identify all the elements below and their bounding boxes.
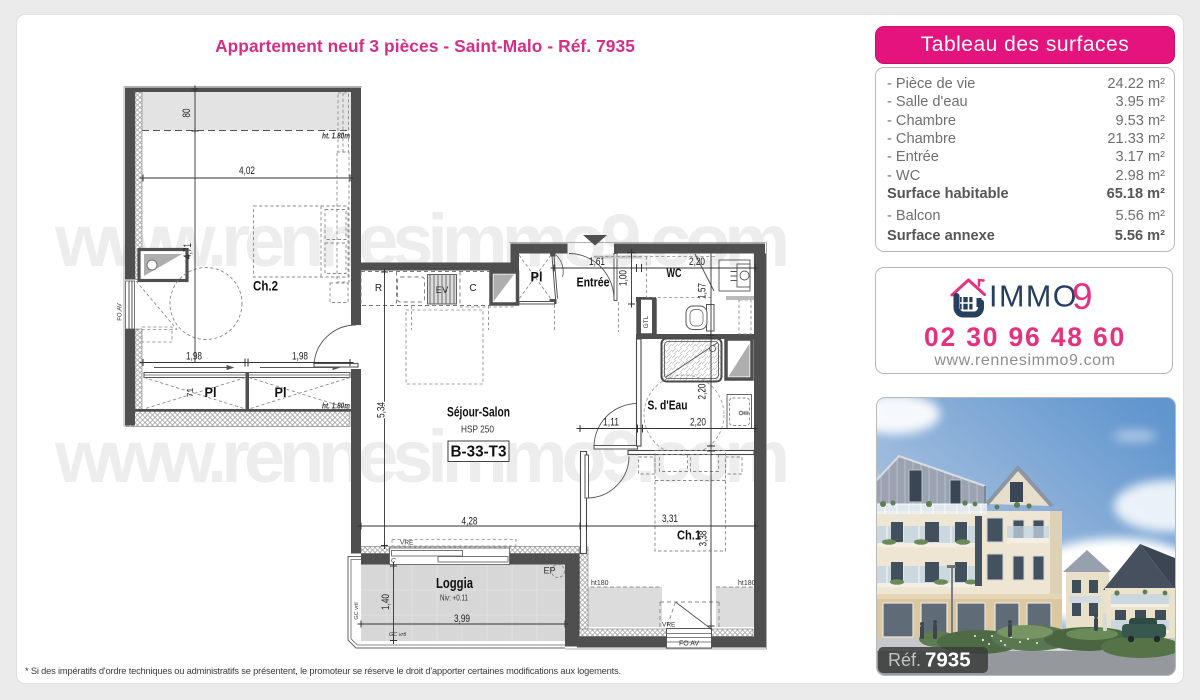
- svg-text:Entrée: Entrée: [577, 275, 610, 290]
- svg-text:3,99: 3,99: [454, 613, 470, 625]
- svg-text:4,71: 4,71: [182, 243, 194, 259]
- svg-text:71: 71: [185, 388, 195, 398]
- svg-text:Pl: Pl: [205, 385, 217, 400]
- svg-text:FO AV: FO AV: [679, 641, 699, 648]
- svg-text:VRE: VRE: [662, 622, 676, 629]
- svg-text:Réf.: Réf.: [888, 650, 921, 670]
- svg-text:1,00: 1,00: [618, 270, 630, 286]
- svg-text:www.rennesimmo9.com: www.rennesimmo9.com: [54, 415, 790, 498]
- svg-text:2,20: 2,20: [690, 417, 706, 429]
- svg-text:EP: EP: [544, 566, 556, 576]
- svg-text:3,31: 3,31: [662, 513, 678, 525]
- svg-text:1,57: 1,57: [697, 283, 709, 299]
- svg-text:FO.AV: FO.AV: [118, 303, 124, 321]
- svg-text:ht180: ht180: [591, 580, 609, 587]
- svg-text:1,98: 1,98: [292, 351, 308, 363]
- svg-text:GTL: GTL: [643, 315, 650, 328]
- svg-text:IMMO: IMMO: [989, 280, 1078, 314]
- svg-text:B-33-T3: B-33-T3: [451, 444, 507, 461]
- svg-text:Pl: Pl: [275, 385, 287, 400]
- svg-text:WC: WC: [667, 266, 682, 280]
- svg-text:Pl: Pl: [531, 270, 543, 285]
- svg-text:5,34: 5,34: [376, 402, 388, 418]
- svg-text:1,61: 1,61: [589, 256, 605, 268]
- svg-text:4,28: 4,28: [462, 516, 478, 528]
- svg-text:1,11: 1,11: [603, 417, 619, 429]
- svg-text:S. d'Eau: S. d'Eau: [648, 399, 688, 413]
- svg-text:2,20: 2,20: [689, 256, 705, 268]
- svg-text:1,98: 1,98: [186, 351, 202, 363]
- svg-text:1,40: 1,40: [380, 594, 392, 610]
- svg-text:Séjour-Salon: Séjour-Salon: [447, 405, 510, 420]
- svg-text:9: 9: [1072, 276, 1093, 317]
- svg-text:C: C: [469, 283, 476, 294]
- svg-text:GC vrtl: GC vrtl: [389, 632, 407, 638]
- svg-text:7935: 7935: [925, 649, 971, 672]
- svg-text:VRE: VRE: [400, 540, 414, 547]
- svg-text:4,02: 4,02: [239, 165, 255, 177]
- svg-text:Niv: +0.11: Niv: +0.11: [440, 593, 468, 603]
- svg-text:EV: EV: [436, 285, 449, 296]
- svg-text:ht180: ht180: [738, 580, 756, 587]
- svg-text:ht. 1.80m: ht. 1.80m: [322, 132, 350, 141]
- svg-text:Ch.2: Ch.2: [253, 279, 278, 294]
- svg-text:Loggia: Loggia: [436, 576, 474, 592]
- svg-text:Ch.1: Ch.1: [677, 528, 701, 543]
- svg-text:C: C: [391, 558, 396, 565]
- svg-text:HSP 250: HSP 250: [461, 424, 494, 436]
- svg-text:GC vrtl: GC vrtl: [354, 602, 360, 619]
- svg-text:80: 80: [181, 109, 193, 118]
- svg-text:ht. 1.80m: ht. 1.80m: [322, 402, 350, 411]
- svg-text:2,20: 2,20: [697, 384, 709, 400]
- svg-text:R: R: [375, 283, 382, 294]
